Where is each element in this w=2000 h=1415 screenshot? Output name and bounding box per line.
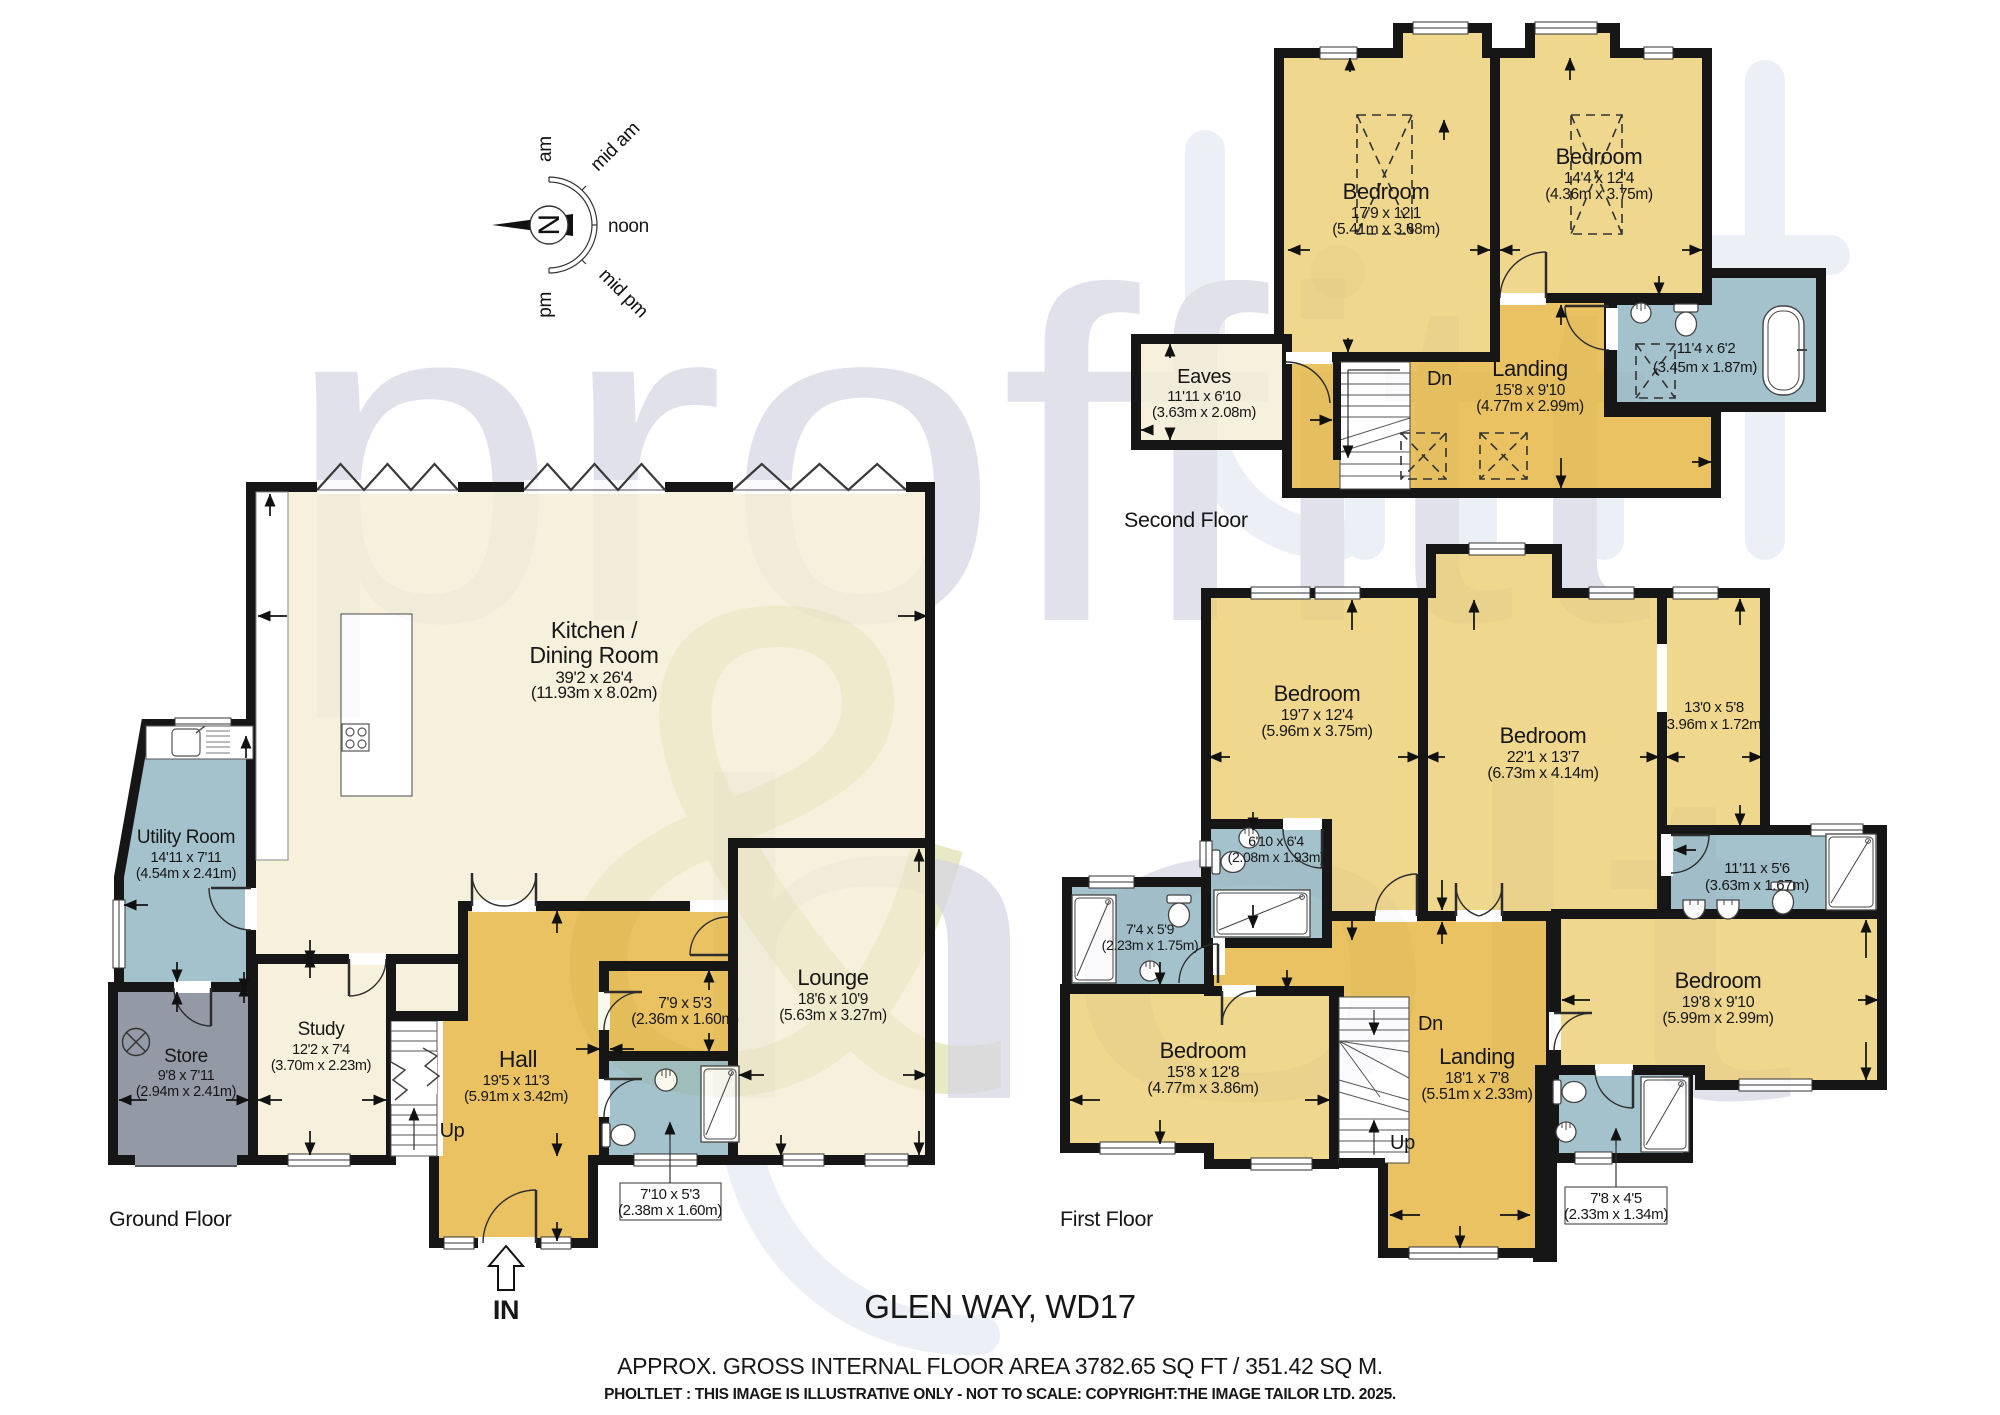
svg-text:&: & [545,457,1012,1239]
svg-text:14'11 x 7'11: 14'11 x 7'11 [151,850,222,866]
svg-text:Store: Store [164,1046,208,1067]
svg-text:9'8 x 7'11: 9'8 x 7'11 [158,1068,215,1084]
svg-text:14'4 x 12'4: 14'4 x 12'4 [1564,170,1635,187]
svg-text:First Floor: First Floor [1060,1207,1153,1231]
svg-text:Hall: Hall [499,1046,537,1072]
svg-text:Ground Floor: Ground Floor [109,1207,232,1231]
svg-text:IN: IN [493,1295,519,1325]
svg-text:12'2 x 7'4: 12'2 x 7'4 [292,1042,350,1058]
svg-text:(4.54m x 2.41m): (4.54m x 2.41m) [136,866,236,882]
svg-text:(2.94m x 2.41m): (2.94m x 2.41m) [136,1084,236,1100]
svg-text:19'5 x 11'3: 19'5 x 11'3 [483,1072,550,1089]
svg-text:(2.33m x 1.34m): (2.33m x 1.34m) [1564,1206,1668,1223]
svg-text:Study: Study [298,1019,346,1040]
svg-text:am: am [535,136,556,162]
svg-text:PHOLTLET : THIS IMAGE IS ILLUS: PHOLTLET : THIS IMAGE IS ILLUSTRATIVE ON… [604,1386,1396,1403]
svg-text:Bedroom: Bedroom [1556,144,1643,169]
svg-text:Utility Room: Utility Room [137,827,235,848]
svg-text:APPROX. GROSS INTERNAL FLOOR A: APPROX. GROSS INTERNAL FLOOR AREA 3782.6… [617,1353,1383,1379]
svg-text:Up: Up [440,1120,465,1142]
svg-text:(3.45m x 1.87m): (3.45m x 1.87m) [1653,359,1757,376]
svg-text:(3.70m x 2.23m): (3.70m x 2.23m) [271,1058,371,1074]
svg-text:11'4 x 6'2: 11'4 x 6'2 [1677,340,1736,357]
svg-text:GLEN WAY, WD17: GLEN WAY, WD17 [864,1288,1135,1325]
